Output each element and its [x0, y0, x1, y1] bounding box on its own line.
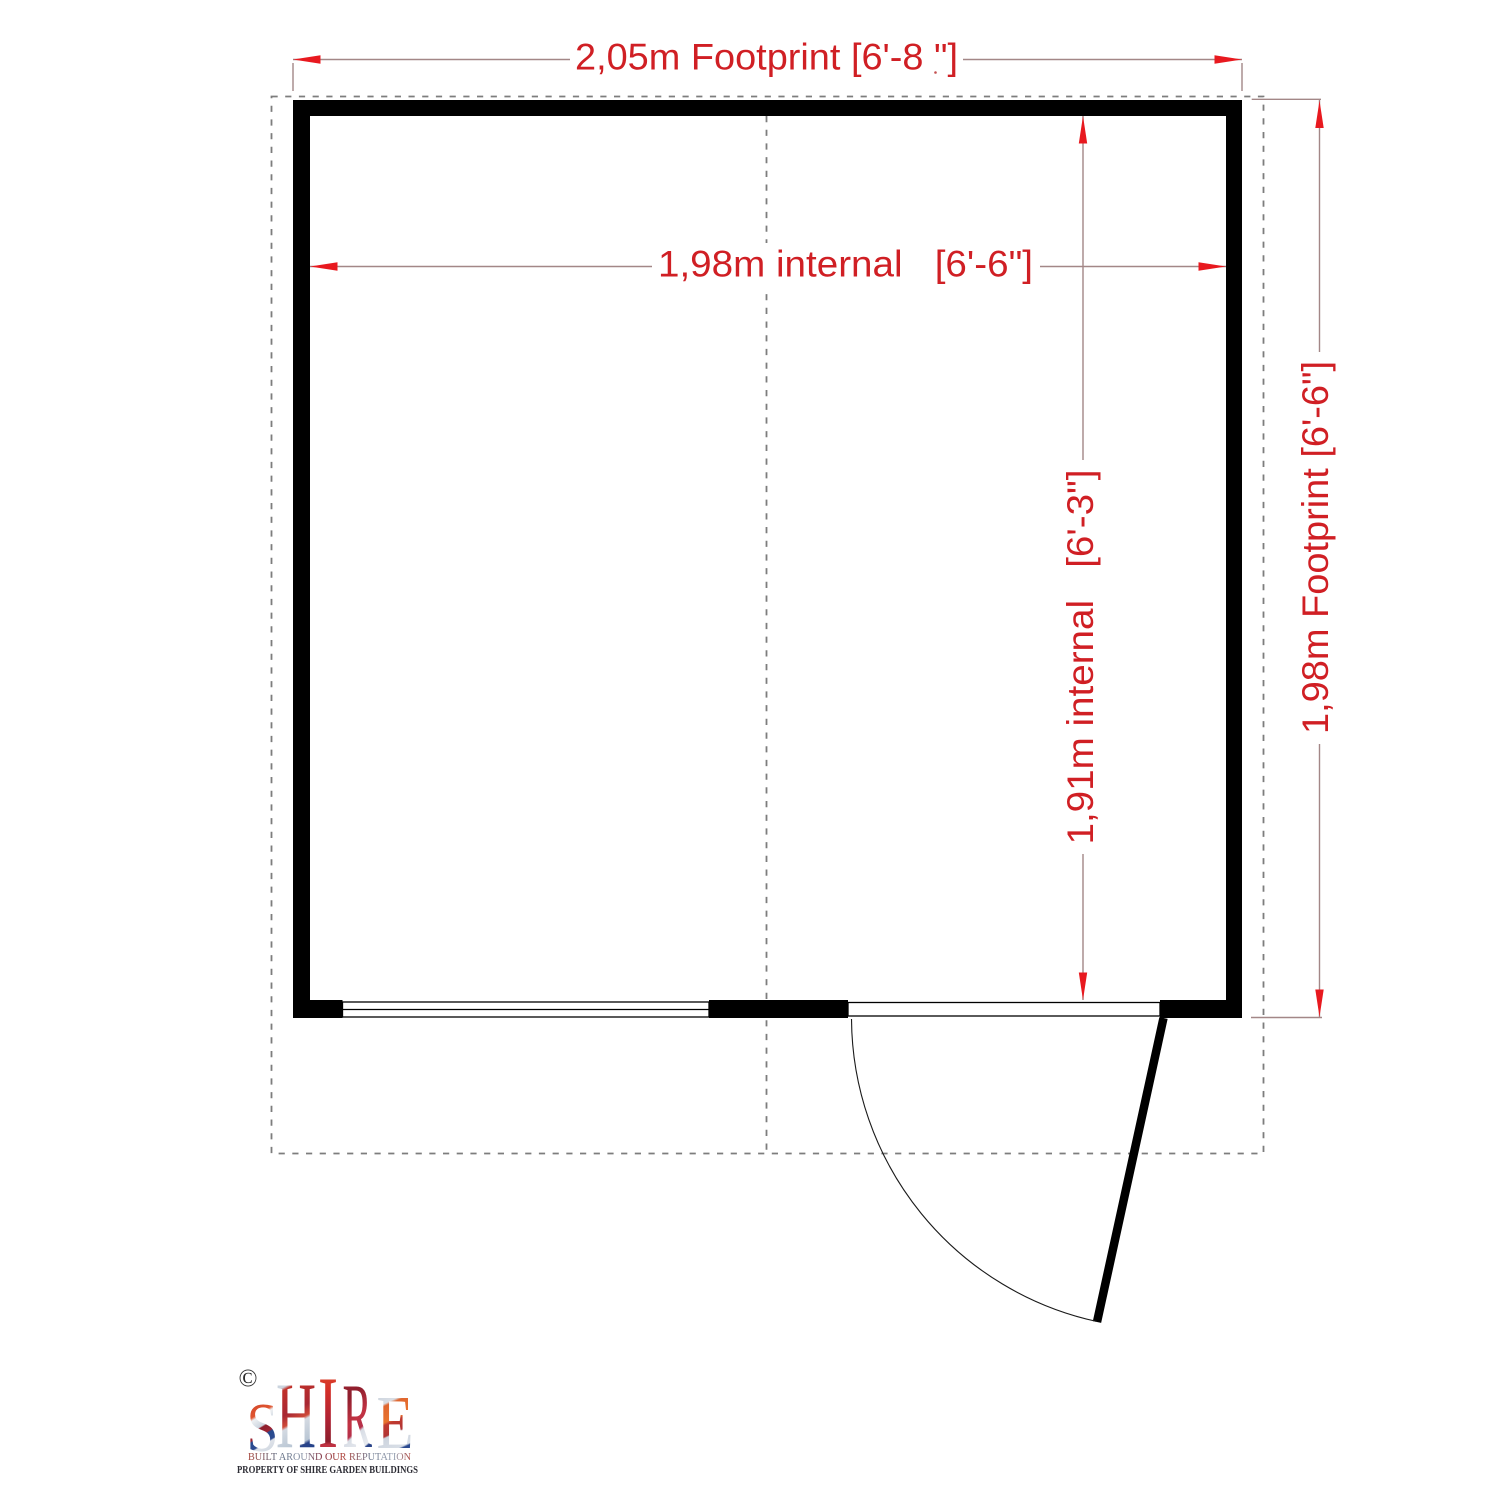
- svg-text:PROPERTY OF SHIRE GARDEN BUILD: PROPERTY OF SHIRE GARDEN BUILDINGS: [237, 1465, 418, 1476]
- svg-text:BUILT AROUND OUR REPUTATION: BUILT AROUND OUR REPUTATION: [248, 1451, 411, 1463]
- svg-text:2,05m Footprint [6'-8 "]: 2,05m Footprint [6'-8 "]: [575, 37, 958, 78]
- svg-text:©: ©: [239, 1366, 258, 1393]
- svg-text:1,98m Footprint [6'-6"]: 1,98m Footprint [6'-6"]: [1295, 361, 1336, 734]
- svg-text:1,91m internal [6'-3"]: 1,91m internal [6'-3"]: [1060, 470, 1101, 845]
- svg-text:1,98m internal [6'-6"]: 1,98m internal [6'-6"]: [658, 244, 1033, 285]
